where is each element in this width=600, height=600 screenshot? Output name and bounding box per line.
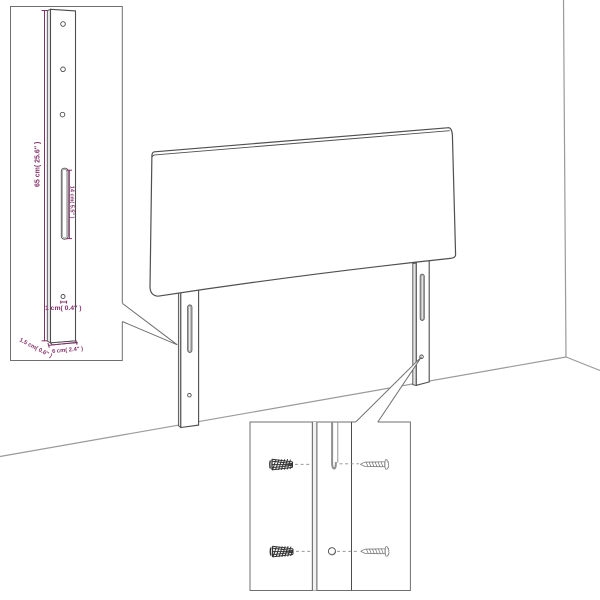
svg-text:14 cm( 5.5″ ): 14 cm( 5.5″ ) xyxy=(68,186,74,219)
svg-text:65 cm( 25.6″ ): 65 cm( 25.6″ ) xyxy=(34,142,41,187)
svg-text:1 cm( 0.4″ ): 1 cm( 0.4″ ) xyxy=(45,305,82,312)
